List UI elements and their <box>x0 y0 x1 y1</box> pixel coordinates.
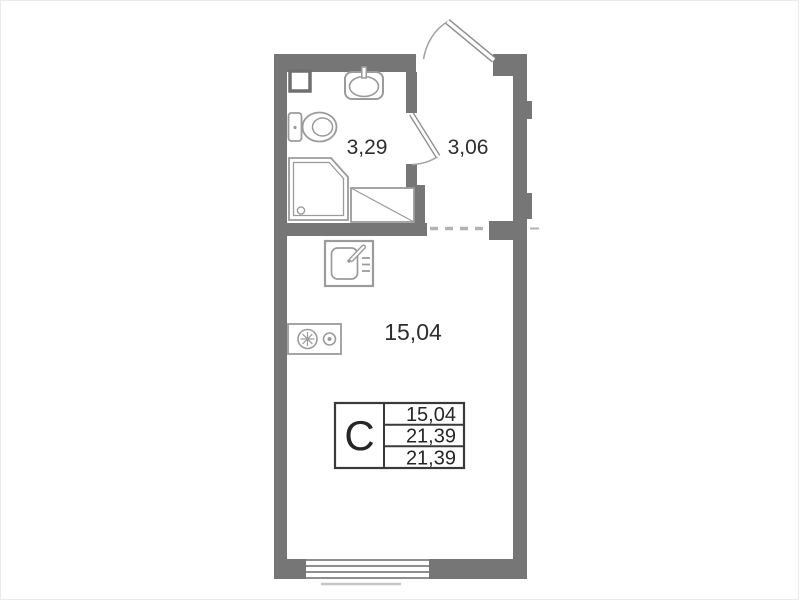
room-label-bathroom: 3,29 <box>347 136 388 159</box>
legend-row-living-area: 15,04 <box>406 404 456 426</box>
entrance-door-arc <box>424 22 448 60</box>
window <box>306 560 429 578</box>
washing-machine-place <box>351 188 414 222</box>
legend-table: С 15,04 21,39 21,39 <box>335 403 464 470</box>
room-label-living: 15,04 <box>384 319 442 345</box>
wall-right-outer-tab-1 <box>527 101 532 119</box>
bathroom-door-arc <box>412 157 438 165</box>
wall-right <box>513 54 527 579</box>
bathroom-door <box>412 114 439 165</box>
kitchen-sink-dot <box>347 259 351 263</box>
wall-bath-hall-lower <box>406 164 417 188</box>
washbasin <box>345 67 383 99</box>
room-label-hallway: 3,06 <box>448 136 489 159</box>
floor-plan: 3,29 3,06 15,04 С 15,04 21,39 21,39 <box>0 0 799 600</box>
kitchen-sink <box>325 241 373 286</box>
wall-left <box>274 54 287 579</box>
entrance-door-leaf-core <box>448 22 495 61</box>
wall-t-stub <box>489 221 513 240</box>
floor-plan-svg: 3,29 3,06 15,04 С 15,04 21,39 21,39 <box>1 1 799 600</box>
stove <box>288 324 341 354</box>
toilet <box>289 113 337 142</box>
wall-entry-corner-block <box>493 54 513 76</box>
legend-row-total-area: 21,39 <box>406 426 456 448</box>
wall-right-outer-tab-2 <box>527 193 532 219</box>
legend-row-full-area: 21,39 <box>406 448 456 470</box>
vent-shaft <box>290 71 310 91</box>
shower-cabin <box>289 158 348 220</box>
legend-type-letter: С <box>344 412 374 459</box>
entrance-door <box>424 22 495 61</box>
bathroom-door-leaf-core <box>412 114 439 157</box>
toilet-tank-button <box>293 126 296 129</box>
toilet-bowl-outer <box>303 113 337 142</box>
wall-bath-hall-upper <box>406 72 417 113</box>
wall-bottom-right <box>429 559 527 579</box>
stove-burner-spokes <box>301 332 315 346</box>
wall-bottom-left <box>274 559 306 579</box>
wall-separator-horizontal <box>287 223 427 236</box>
washbasin-tap <box>362 67 367 78</box>
wall-niche-block <box>414 185 425 223</box>
stove-burner-small-dot <box>328 337 332 341</box>
